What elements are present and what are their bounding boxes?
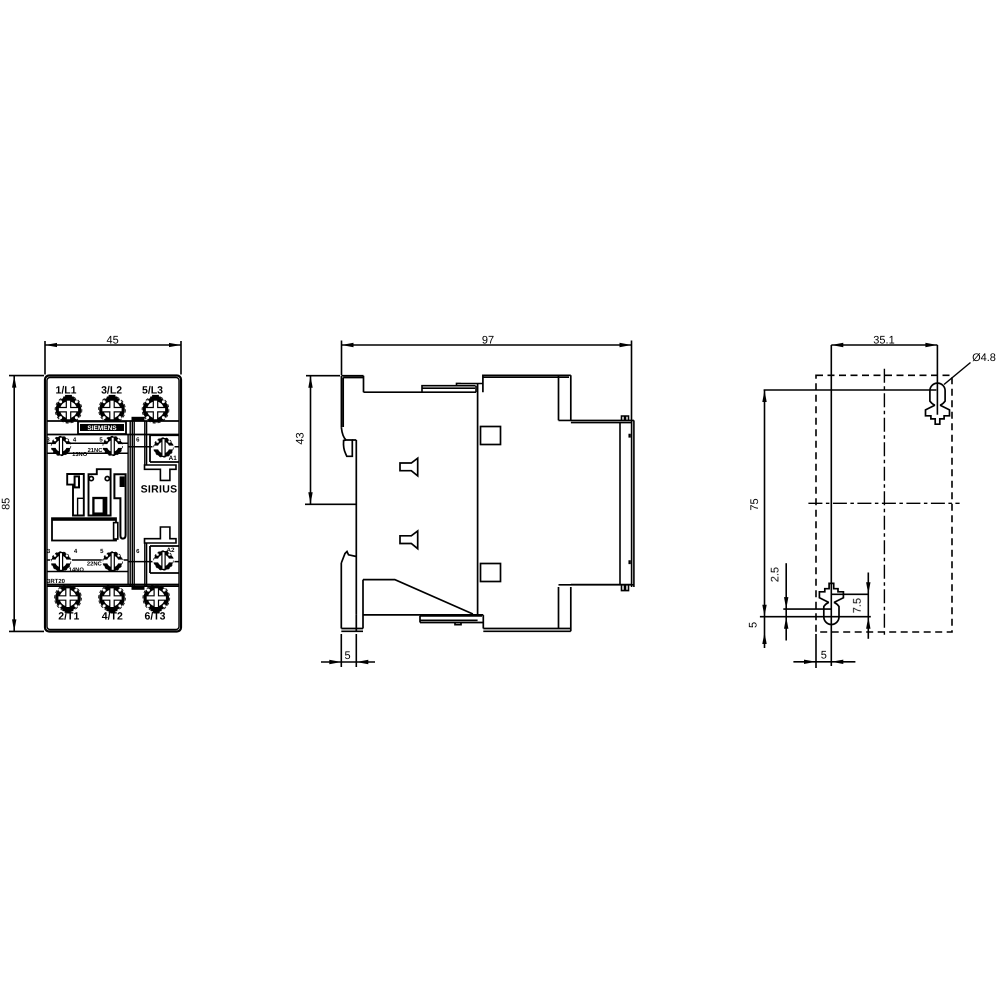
svg-text:22NC: 22NC [87, 561, 103, 568]
svg-text:75: 75 [749, 498, 761, 510]
svg-text:5: 5 [821, 650, 827, 662]
svg-text:45: 45 [106, 335, 118, 347]
svg-text:13NO: 13NO [72, 451, 88, 458]
svg-text:4/T2: 4/T2 [102, 611, 123, 623]
svg-text:6/T3: 6/T3 [144, 611, 165, 623]
svg-text:97: 97 [482, 335, 494, 347]
svg-text:3RT20: 3RT20 [47, 578, 66, 585]
svg-text:35.1: 35.1 [873, 335, 894, 347]
svg-text:85: 85 [0, 498, 12, 510]
svg-text:5: 5 [344, 650, 350, 662]
svg-text:A1: A1 [169, 455, 178, 462]
svg-text:5: 5 [748, 622, 760, 628]
svg-text:3/L2: 3/L2 [101, 385, 122, 397]
svg-text:7.5: 7.5 [852, 598, 864, 613]
svg-text:A2: A2 [166, 547, 175, 554]
svg-text:SIRIUS: SIRIUS [141, 484, 178, 496]
svg-text:Ø4.8: Ø4.8 [972, 352, 996, 364]
svg-text:43: 43 [295, 432, 307, 444]
svg-text:14NO: 14NO [69, 567, 85, 574]
svg-text:2/T1: 2/T1 [58, 611, 79, 623]
svg-text:SIEMENS: SIEMENS [87, 425, 117, 432]
svg-text:5/L3: 5/L3 [142, 385, 163, 397]
svg-text:1/L1: 1/L1 [55, 385, 76, 397]
svg-text:21NC: 21NC [88, 447, 104, 454]
svg-text:2.5: 2.5 [770, 567, 782, 582]
